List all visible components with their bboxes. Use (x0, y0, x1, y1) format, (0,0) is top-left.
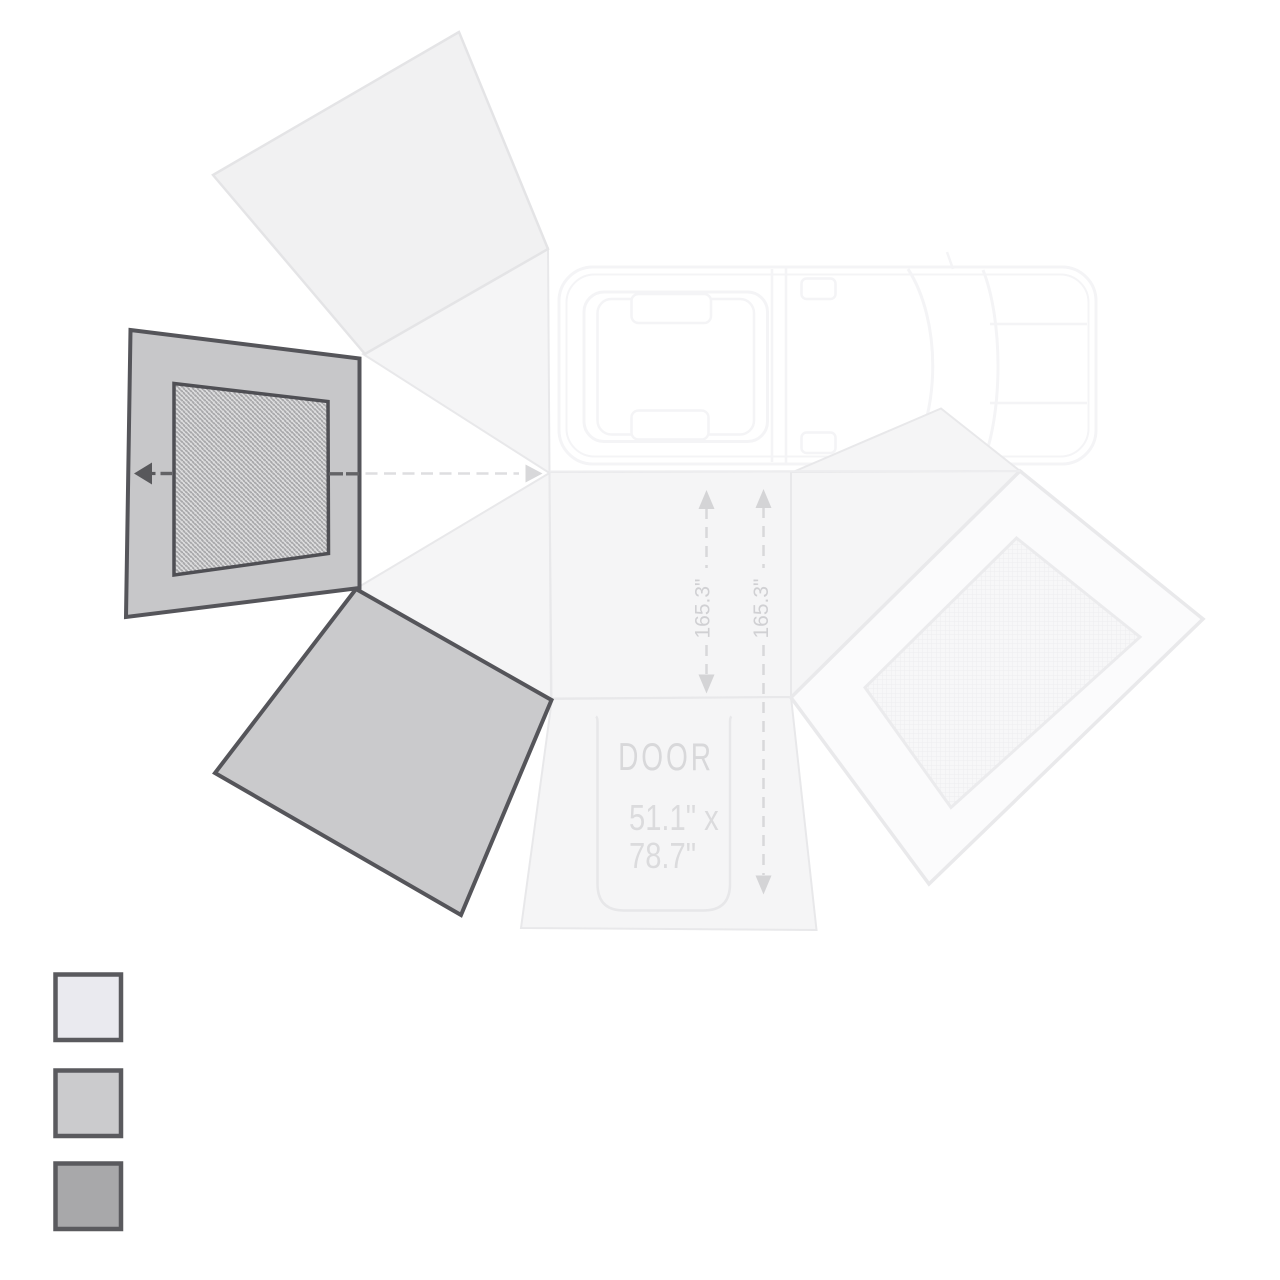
svg-text:165.3": 165.3" (750, 578, 773, 638)
svg-text:165.3": 165.3" (692, 578, 715, 638)
svg-text:51.1" x: 51.1" x (629, 797, 719, 838)
svg-text:78.7": 78.7" (629, 835, 696, 876)
svg-text:DOOR: DOOR (618, 736, 714, 780)
